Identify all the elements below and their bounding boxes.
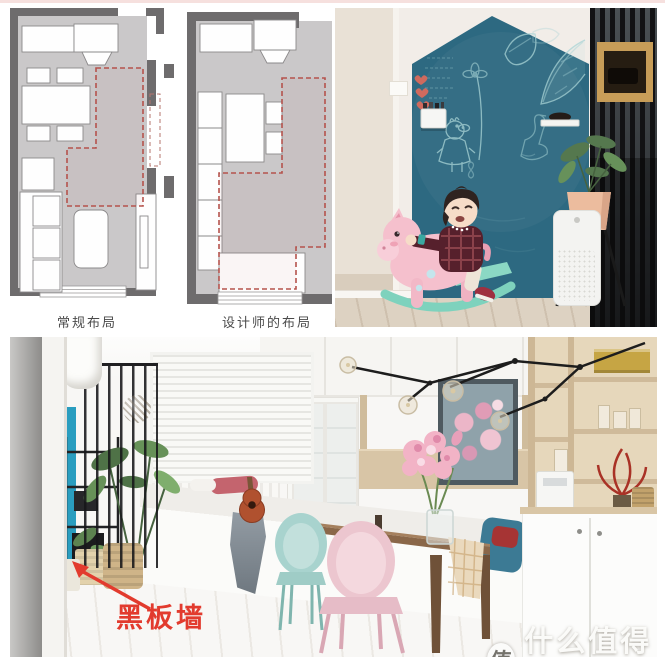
child-on-rocking-horse xyxy=(375,178,520,327)
collage: 常规布局 设计师的布局 xyxy=(0,0,665,665)
door-frame xyxy=(42,337,67,657)
door-handle xyxy=(597,531,602,536)
watermark-badge-icon: 值 xyxy=(487,643,515,657)
branch-chandelier xyxy=(310,337,657,452)
glass-vase xyxy=(427,510,453,544)
wood-box-shelf xyxy=(597,42,653,102)
chalkboard-wall-photo xyxy=(335,8,657,327)
counter-top xyxy=(520,507,657,514)
plan-label-conventional: 常规布局 xyxy=(22,312,152,331)
floor-plan-drawing xyxy=(8,8,334,308)
watermark-brand: 什么值得买 xyxy=(524,618,657,657)
seat-pillow-white xyxy=(190,479,216,491)
door-handle xyxy=(577,529,582,534)
machine-panel xyxy=(543,478,567,486)
plan-label-designer: 设计师的布局 xyxy=(194,312,334,331)
purifier-indicator xyxy=(574,217,580,223)
model-motorcycle xyxy=(608,68,638,84)
guitar xyxy=(238,477,266,527)
rattan-ball-ornament xyxy=(123,395,151,423)
floor-plan-designer xyxy=(187,12,332,304)
top-border-tint xyxy=(0,0,665,3)
air-conditioner xyxy=(62,337,102,389)
floor-plan-conventional xyxy=(10,8,174,297)
purifier-vent-texture xyxy=(557,249,595,301)
living-room-photo: 黑板墙 值 什么值得买 xyxy=(10,337,657,657)
floor-plan-comparison: 常规布局 设计师的布局 xyxy=(8,8,334,334)
black-slat-room-divider xyxy=(84,363,158,568)
watermark: 值 什么值得买 xyxy=(487,618,657,657)
table-leg xyxy=(430,555,442,653)
annotation-label: 黑板墙 xyxy=(116,596,206,635)
pink-chair xyxy=(315,519,407,657)
foreground-gray-wall xyxy=(10,337,42,657)
air-purifier xyxy=(553,210,601,306)
window xyxy=(218,292,302,304)
